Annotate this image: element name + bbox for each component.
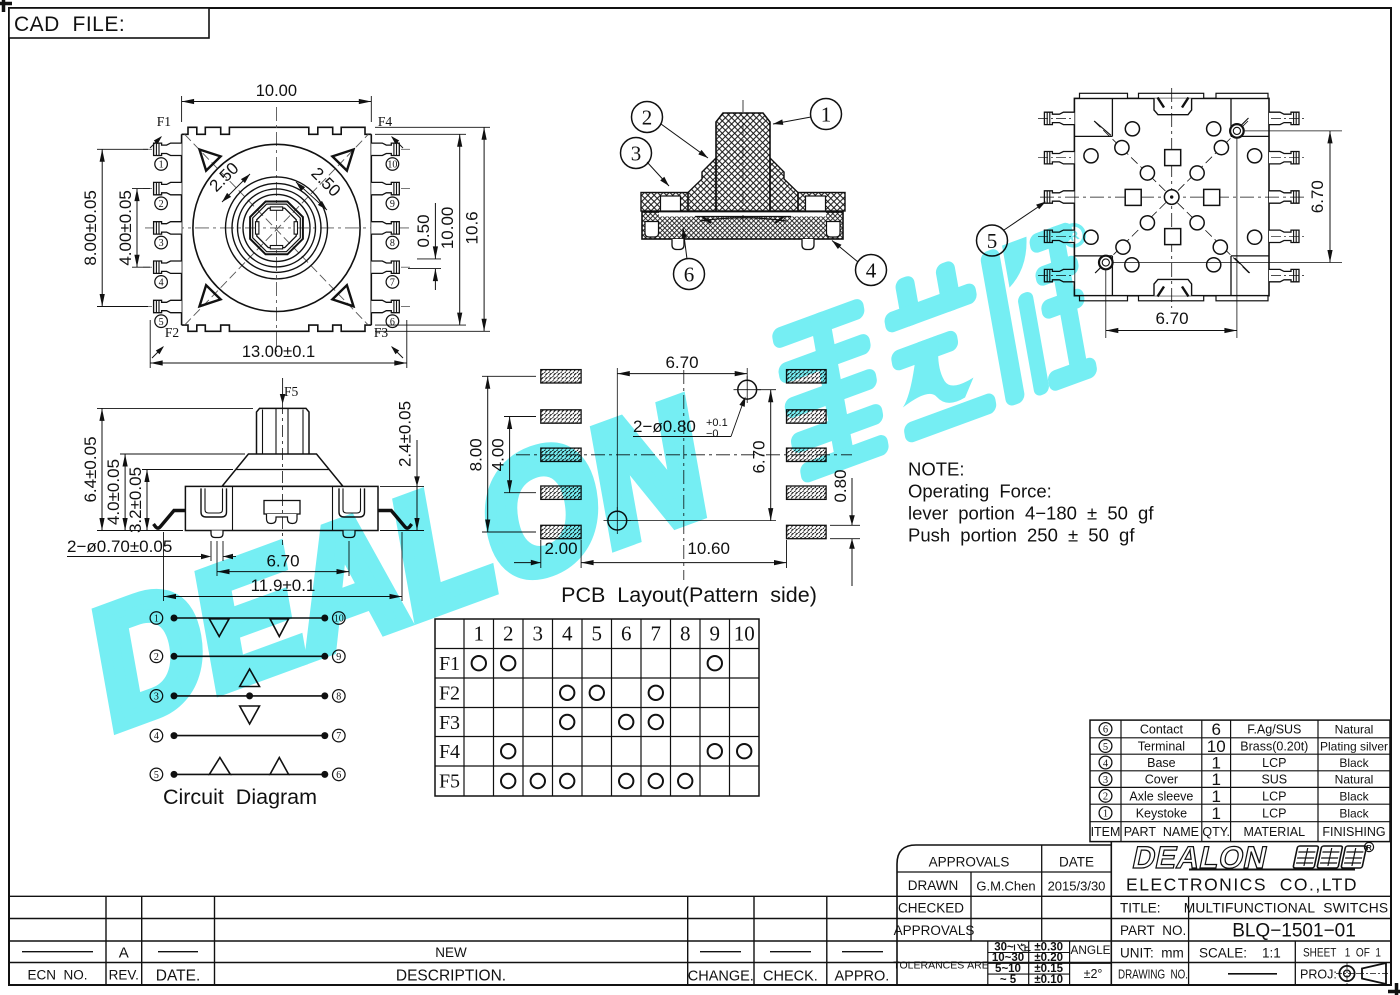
svg-text:10.00: 10.00 bbox=[256, 82, 297, 100]
svg-text:3.2±0.05: 3.2±0.05 bbox=[126, 467, 145, 533]
svg-text:SHEET 1 OF 1: SHEET 1 OF 1 bbox=[1303, 946, 1381, 960]
svg-text:SUS: SUS bbox=[1261, 773, 1287, 787]
svg-text:2: 2 bbox=[503, 622, 514, 646]
svg-text:TOLERANCES ARE: TOLERANCES ARE bbox=[893, 960, 989, 972]
svg-text:1: 1 bbox=[1103, 809, 1108, 820]
svg-text:6: 6 bbox=[336, 770, 341, 781]
svg-text:0.80: 0.80 bbox=[831, 469, 850, 502]
svg-text:PART NO.: PART NO. bbox=[1120, 923, 1186, 938]
svg-text:Axle sleeve: Axle sleeve bbox=[1129, 789, 1193, 803]
svg-text:CHECKED: CHECKED bbox=[898, 901, 964, 916]
svg-text:Natural: Natural bbox=[1335, 723, 1374, 737]
svg-text:APPROVALS: APPROVALS bbox=[894, 923, 975, 938]
svg-text:Black: Black bbox=[1339, 756, 1369, 770]
svg-text:DESCRIPTION.: DESCRIPTION. bbox=[396, 968, 506, 985]
svg-text:4: 4 bbox=[562, 622, 573, 646]
svg-text:Contact: Contact bbox=[1140, 723, 1184, 737]
svg-text:Keystoke: Keystoke bbox=[1136, 807, 1187, 821]
svg-text:A: A bbox=[119, 945, 129, 962]
svg-text:F1: F1 bbox=[157, 114, 171, 129]
svg-text:6.4±0.05: 6.4±0.05 bbox=[81, 436, 100, 502]
svg-text:3: 3 bbox=[631, 142, 642, 166]
svg-text:1: 1 bbox=[159, 160, 164, 171]
svg-text:SCALE: 1:1: SCALE: 1:1 bbox=[1199, 946, 1281, 961]
svg-text:7: 7 bbox=[390, 278, 395, 289]
svg-text:Cover: Cover bbox=[1145, 773, 1178, 787]
svg-text:F2: F2 bbox=[439, 683, 460, 705]
svg-text:10: 10 bbox=[734, 622, 755, 646]
svg-text:LCP: LCP bbox=[1262, 756, 1286, 770]
svg-text:3: 3 bbox=[533, 622, 544, 646]
svg-text:DRAWING NO.: DRAWING NO. bbox=[1118, 968, 1188, 982]
svg-text:F5: F5 bbox=[284, 384, 299, 399]
svg-text:ELECTRONICS CO.,LTD: ELECTRONICS CO.,LTD bbox=[1126, 875, 1358, 895]
svg-text:10.6: 10.6 bbox=[463, 211, 482, 244]
svg-text:DATE.: DATE. bbox=[156, 968, 201, 985]
svg-text:8: 8 bbox=[336, 692, 341, 703]
svg-text:7: 7 bbox=[336, 731, 341, 742]
svg-text:6.70: 6.70 bbox=[1155, 309, 1188, 328]
svg-text:8.00±0.05: 8.00±0.05 bbox=[81, 190, 100, 266]
svg-text:4.00±0.05: 4.00±0.05 bbox=[116, 190, 135, 266]
svg-text:NEW: NEW bbox=[435, 945, 467, 960]
svg-text:APPROVALS: APPROVALS bbox=[929, 855, 1010, 870]
svg-text:10.00: 10.00 bbox=[438, 207, 457, 250]
svg-text:ITEM: ITEM bbox=[1091, 825, 1121, 839]
svg-text:Base: Base bbox=[1147, 756, 1176, 770]
svg-text:F.Ag/SUS: F.Ag/SUS bbox=[1247, 723, 1301, 737]
svg-text:2: 2 bbox=[642, 106, 653, 130]
svg-text:10: 10 bbox=[387, 160, 397, 171]
svg-text:Plating silver: Plating silver bbox=[1320, 740, 1388, 754]
svg-text:3: 3 bbox=[159, 238, 164, 249]
svg-text:APPRO.: APPRO. bbox=[835, 969, 890, 985]
svg-text:BLQ−1501−01: BLQ−1501−01 bbox=[1232, 921, 1356, 942]
svg-text:R: R bbox=[1366, 843, 1372, 852]
svg-text:6.70: 6.70 bbox=[1308, 180, 1327, 213]
svg-text:CAD FILE:: CAD FILE: bbox=[14, 13, 125, 36]
svg-text:ECN NO.: ECN NO. bbox=[27, 968, 87, 983]
svg-text:2: 2 bbox=[1103, 792, 1108, 803]
svg-text:Push portion 250 ± 50 gf: Push portion 250 ± 50 gf bbox=[908, 525, 1135, 546]
svg-text:2.4±0.05: 2.4±0.05 bbox=[396, 401, 415, 467]
svg-text:F5: F5 bbox=[439, 771, 460, 793]
svg-text:ANGLE: ANGLE bbox=[1071, 943, 1111, 957]
svg-text:4.0±0.05: 4.0±0.05 bbox=[104, 459, 123, 525]
svg-text:QTY.: QTY. bbox=[1202, 825, 1230, 839]
svg-text:REV.: REV. bbox=[109, 968, 139, 983]
svg-text:F1: F1 bbox=[439, 653, 460, 675]
svg-text:2: 2 bbox=[159, 199, 164, 210]
svg-text:6: 6 bbox=[1103, 725, 1108, 736]
svg-text:UNIT: mm: UNIT: mm bbox=[1120, 946, 1184, 961]
svg-text:1: 1 bbox=[1211, 787, 1220, 806]
svg-text:6: 6 bbox=[621, 622, 632, 646]
svg-text:3: 3 bbox=[1103, 775, 1108, 786]
svg-text:F3: F3 bbox=[374, 325, 389, 340]
svg-text:8: 8 bbox=[680, 622, 691, 646]
svg-text:2015/3/30: 2015/3/30 bbox=[1048, 879, 1106, 894]
svg-text:4: 4 bbox=[1103, 758, 1109, 769]
svg-text:6: 6 bbox=[684, 263, 695, 287]
svg-text:NOTE:: NOTE: bbox=[908, 459, 965, 480]
svg-text:F4: F4 bbox=[378, 114, 393, 129]
svg-text:5: 5 bbox=[159, 317, 164, 328]
svg-text:CHANGE.: CHANGE. bbox=[688, 969, 754, 985]
svg-text:PROJ:: PROJ: bbox=[1300, 968, 1337, 982]
svg-text:G.M.Chen: G.M.Chen bbox=[976, 879, 1035, 894]
svg-text:F3: F3 bbox=[439, 712, 460, 734]
svg-text:Brass(0.20t): Brass(0.20t) bbox=[1240, 740, 1308, 754]
svg-text:−0: −0 bbox=[706, 428, 719, 440]
svg-text:4: 4 bbox=[159, 278, 164, 289]
svg-text:0.50: 0.50 bbox=[414, 214, 433, 247]
svg-text:Terminal: Terminal bbox=[1138, 740, 1185, 754]
svg-text:Black: Black bbox=[1339, 807, 1369, 821]
svg-text:Circuit Diagram: Circuit Diagram bbox=[163, 785, 317, 809]
svg-text:Operating Force:: Operating Force: bbox=[908, 481, 1052, 502]
svg-text:Natural: Natural bbox=[1335, 773, 1374, 787]
svg-text:8: 8 bbox=[390, 238, 395, 249]
svg-text:±2°: ±2° bbox=[1084, 967, 1103, 981]
svg-text:13.00±0.1: 13.00±0.1 bbox=[242, 343, 315, 361]
svg-text:7: 7 bbox=[651, 622, 662, 646]
svg-text:9: 9 bbox=[390, 199, 395, 210]
svg-text:±0.10: ±0.10 bbox=[1034, 974, 1063, 986]
svg-text:1: 1 bbox=[1211, 804, 1220, 823]
svg-text:MULTIFUNCTIONAL SWITCHS: MULTIFUNCTIONAL SWITCHS bbox=[1184, 901, 1389, 916]
svg-text:lever portion 4−180 ± 50 gf: lever portion 4−180 ± 50 gf bbox=[908, 503, 1154, 524]
svg-text:MATERIAL: MATERIAL bbox=[1244, 825, 1306, 839]
svg-text:1: 1 bbox=[821, 103, 832, 127]
svg-text:~ 5: ~ 5 bbox=[1000, 974, 1017, 986]
svg-text:DRAWN: DRAWN bbox=[908, 878, 959, 893]
svg-text:F4: F4 bbox=[439, 741, 460, 763]
svg-text:4: 4 bbox=[866, 259, 877, 283]
svg-text:CHECK.: CHECK. bbox=[763, 969, 818, 985]
svg-text:LCP: LCP bbox=[1262, 807, 1286, 821]
svg-text:LCP: LCP bbox=[1262, 789, 1286, 803]
svg-text:5: 5 bbox=[592, 622, 603, 646]
svg-text:6: 6 bbox=[390, 317, 395, 328]
svg-text:TITLE:: TITLE: bbox=[1120, 901, 1161, 916]
svg-text:Black: Black bbox=[1339, 789, 1369, 803]
svg-text:5: 5 bbox=[154, 770, 159, 781]
svg-text:DATE: DATE bbox=[1059, 855, 1094, 870]
svg-text:FINISHING: FINISHING bbox=[1322, 825, 1385, 839]
svg-text:6.70: 6.70 bbox=[750, 440, 769, 473]
svg-text:9: 9 bbox=[710, 622, 721, 646]
svg-text:PART NAME: PART NAME bbox=[1124, 825, 1199, 839]
svg-text:F2: F2 bbox=[165, 325, 179, 340]
svg-text:5: 5 bbox=[1103, 742, 1108, 753]
